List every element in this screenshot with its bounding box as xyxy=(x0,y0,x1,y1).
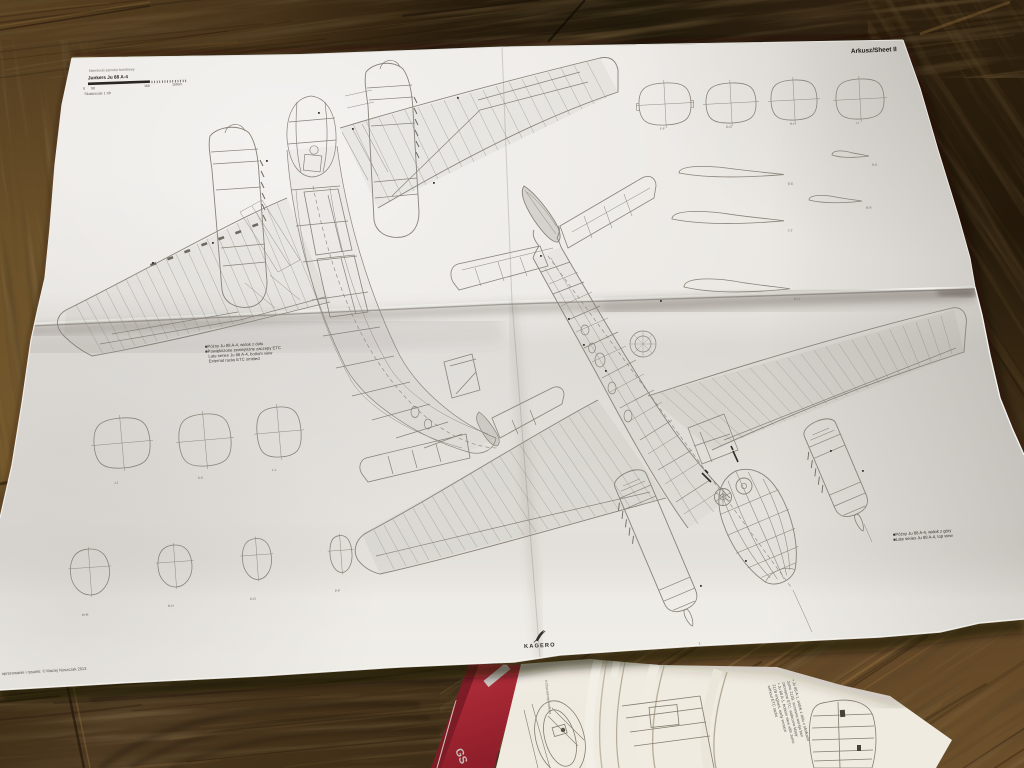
svg-text:N-N: N-N xyxy=(168,604,175,608)
svg-text:E-E: E-E xyxy=(788,182,794,186)
svg-text:0: 0 xyxy=(83,87,85,91)
svg-text:L-L: L-L xyxy=(272,468,277,472)
svg-text:150cm: 150cm xyxy=(172,82,182,86)
svg-text:T-T: T-T xyxy=(788,229,793,233)
svg-text:S-S: S-S xyxy=(872,163,878,167)
svg-text:O-O: O-O xyxy=(250,597,257,601)
svg-text:P-P: P-P xyxy=(335,589,341,593)
svg-text:R-R: R-R xyxy=(866,206,873,210)
svg-text:F-F: F-F xyxy=(660,127,665,131)
svg-text:50: 50 xyxy=(91,86,95,90)
svg-text:100: 100 xyxy=(144,84,150,88)
svg-text:H-H: H-H xyxy=(790,122,797,126)
svg-text:J-J: J-J xyxy=(114,481,119,485)
svg-text:U-U: U-U xyxy=(794,297,801,301)
svg-text:I-I: I-I xyxy=(856,121,859,125)
svg-text:M-M: M-M xyxy=(82,613,89,617)
svg-text:G-G: G-G xyxy=(726,125,733,129)
